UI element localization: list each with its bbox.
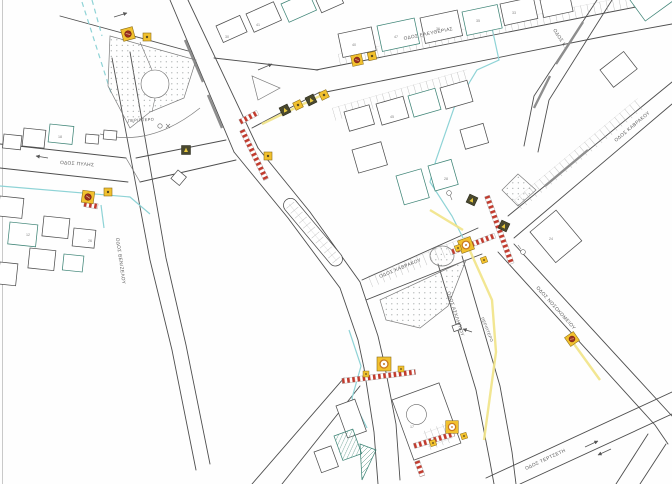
block-number: 41 bbox=[256, 23, 260, 27]
traffic-signal bbox=[466, 194, 478, 206]
traffic-signal bbox=[305, 94, 317, 106]
cad-site-plan: ΟΔΟΣ ΕΛΕΥΘΕΡΙΑΣ ΟΔΟΣ ΠΥΛΗΣ ΟΔΟΣ ΒΕΝΙΖΕΛΟ… bbox=[0, 0, 672, 484]
traffic-plan-drawing: ΟΔΟΣ ΕΛΕΥΘΕΡΙΑΣ ΟΔΟΣ ΠΥΛΗΣ ΟΔΟΣ ΒΕΝΙΖΕΛΟ… bbox=[0, 0, 672, 484]
block-number: 40 bbox=[352, 43, 356, 47]
block-number: 35 bbox=[476, 19, 480, 23]
traffic-signal bbox=[81, 190, 95, 204]
traffic-signal bbox=[446, 421, 459, 434]
block-number: 12 bbox=[26, 233, 30, 237]
traffic-signal bbox=[143, 33, 151, 41]
block-number: 28 bbox=[444, 177, 448, 181]
traffic-signal bbox=[104, 188, 112, 196]
block-number: 33 bbox=[512, 11, 516, 15]
traffic-signal bbox=[398, 366, 404, 372]
traffic-signal bbox=[363, 371, 369, 377]
water-utility-lines bbox=[0, 0, 499, 428]
block-number: 18 bbox=[58, 135, 62, 139]
traffic-signal bbox=[377, 357, 391, 371]
traffic-signal bbox=[121, 27, 136, 42]
street-label-pylis: ΟΔΟΣ ΠΥΛΗΣ bbox=[60, 160, 95, 168]
island-small-triangle bbox=[252, 76, 280, 100]
traffic-signal bbox=[264, 152, 272, 160]
buildings-layer bbox=[0, 0, 672, 480]
parking-median bbox=[281, 196, 346, 269]
traffic-signal bbox=[351, 54, 364, 67]
block-number: 47 bbox=[394, 35, 398, 39]
street-label-nosokomeiou: ΟΔΟΣ ΝΟΣΟΚΟΜΕΙΟΥ bbox=[535, 285, 577, 331]
block-number: 24 bbox=[549, 237, 553, 241]
traffic-signal bbox=[367, 51, 376, 60]
street-label-tertseti: ΟΔΟΣ ΤΕΡΤΣΕΤΗ bbox=[524, 448, 567, 472]
block-number: 45 bbox=[390, 115, 394, 119]
kiosk-label-1: ΠΕΡΙΠΤΕΡΟ bbox=[128, 117, 154, 123]
traffic-signal bbox=[564, 331, 579, 346]
block-number: 36 bbox=[436, 27, 440, 31]
traffic-signal bbox=[182, 146, 191, 155]
block-number: 17 bbox=[410, 425, 414, 429]
island-loop bbox=[141, 70, 169, 98]
traffic-signal bbox=[480, 256, 488, 264]
block-number: 26 bbox=[88, 239, 92, 243]
traffic-signal bbox=[460, 432, 467, 439]
block-number: 30 bbox=[225, 35, 229, 39]
street-label-venizelou: ΟΔΟΣ ΒΕΝΙΖΕΛΟΥ bbox=[114, 237, 127, 285]
